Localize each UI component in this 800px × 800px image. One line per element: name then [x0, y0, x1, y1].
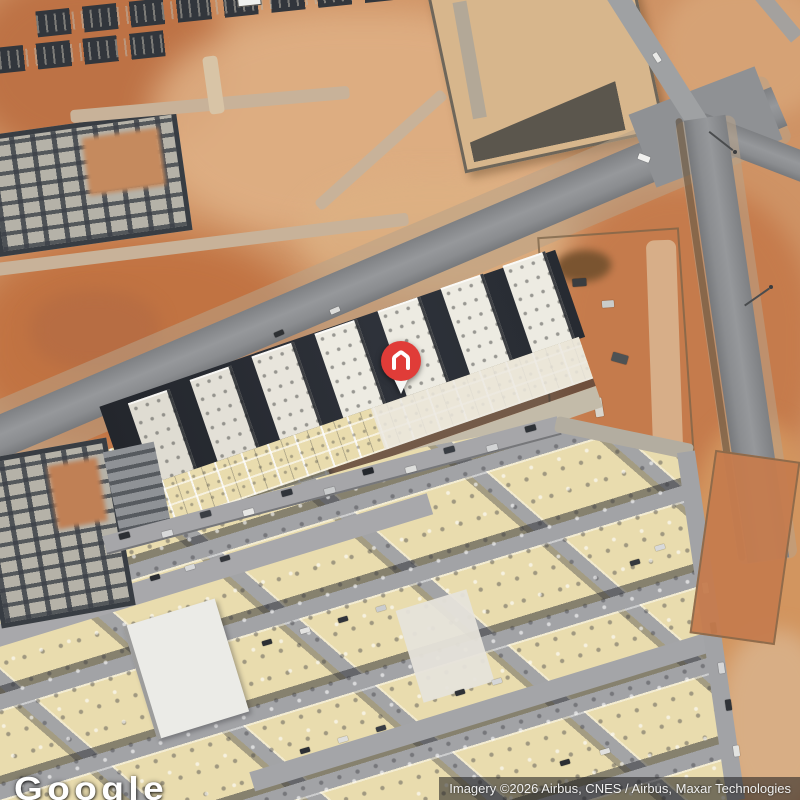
- vehicle: [602, 300, 614, 308]
- construction-forms: [0, 30, 171, 75]
- vehicle: [611, 352, 629, 365]
- vehicle: [572, 278, 587, 287]
- vehicle: [524, 424, 536, 433]
- map-pin[interactable]: [381, 341, 421, 397]
- vehicle: [281, 488, 293, 497]
- dirt-court: [47, 457, 108, 529]
- pin-bubble: [381, 341, 421, 381]
- vehicle: [242, 508, 254, 517]
- vehicle: [161, 529, 173, 538]
- vehicle: [443, 446, 455, 455]
- home-icon: [381, 341, 421, 381]
- attribution-bar: Imagery ©2026 Airbus, CNES / Airbus, Max…: [439, 777, 800, 800]
- vehicle: [486, 444, 498, 453]
- google-logo[interactable]: Google: [14, 770, 168, 800]
- satellite-map[interactable]: Google Imagery ©2026 Airbus, CNES / Airb…: [0, 0, 800, 800]
- streetlight: [733, 150, 737, 154]
- vehicle: [324, 486, 336, 495]
- vehicle: [362, 467, 374, 476]
- streetlight: [769, 285, 773, 289]
- vehicle: [405, 465, 417, 474]
- dirt-court: [81, 128, 166, 196]
- vehicle: [200, 510, 212, 519]
- attribution-text: Imagery ©2026 Airbus, CNES / Airbus, Max…: [449, 781, 791, 796]
- compound-wall-strip: [453, 1, 487, 120]
- construction-forms: [35, 0, 436, 37]
- vehicle: [118, 531, 130, 540]
